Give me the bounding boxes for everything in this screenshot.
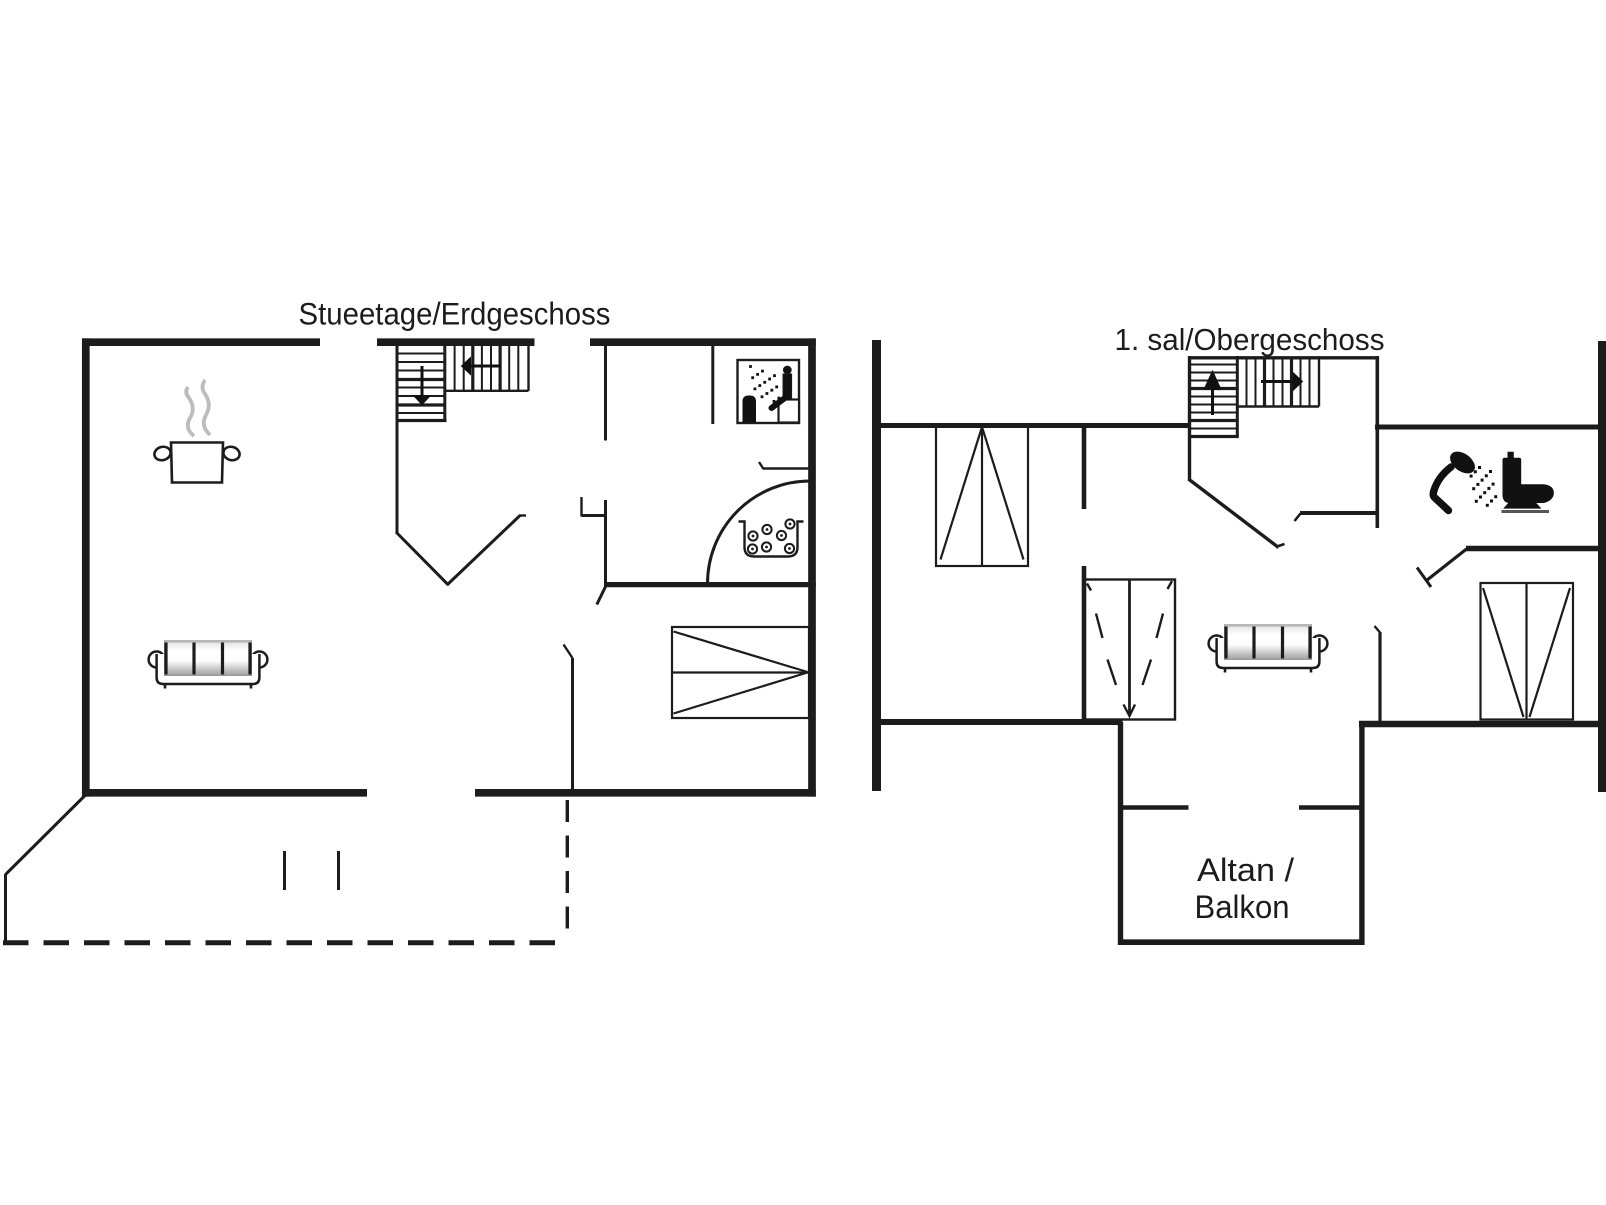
svg-text:Balkon: Balkon	[1195, 889, 1290, 925]
svg-text:1. sal/Obergeschoss: 1. sal/Obergeschoss	[1115, 323, 1385, 357]
svg-text:Stueetage/Erdgeschoss: Stueetage/Erdgeschoss	[299, 296, 611, 332]
svg-text:Altan /: Altan /	[1197, 852, 1295, 888]
